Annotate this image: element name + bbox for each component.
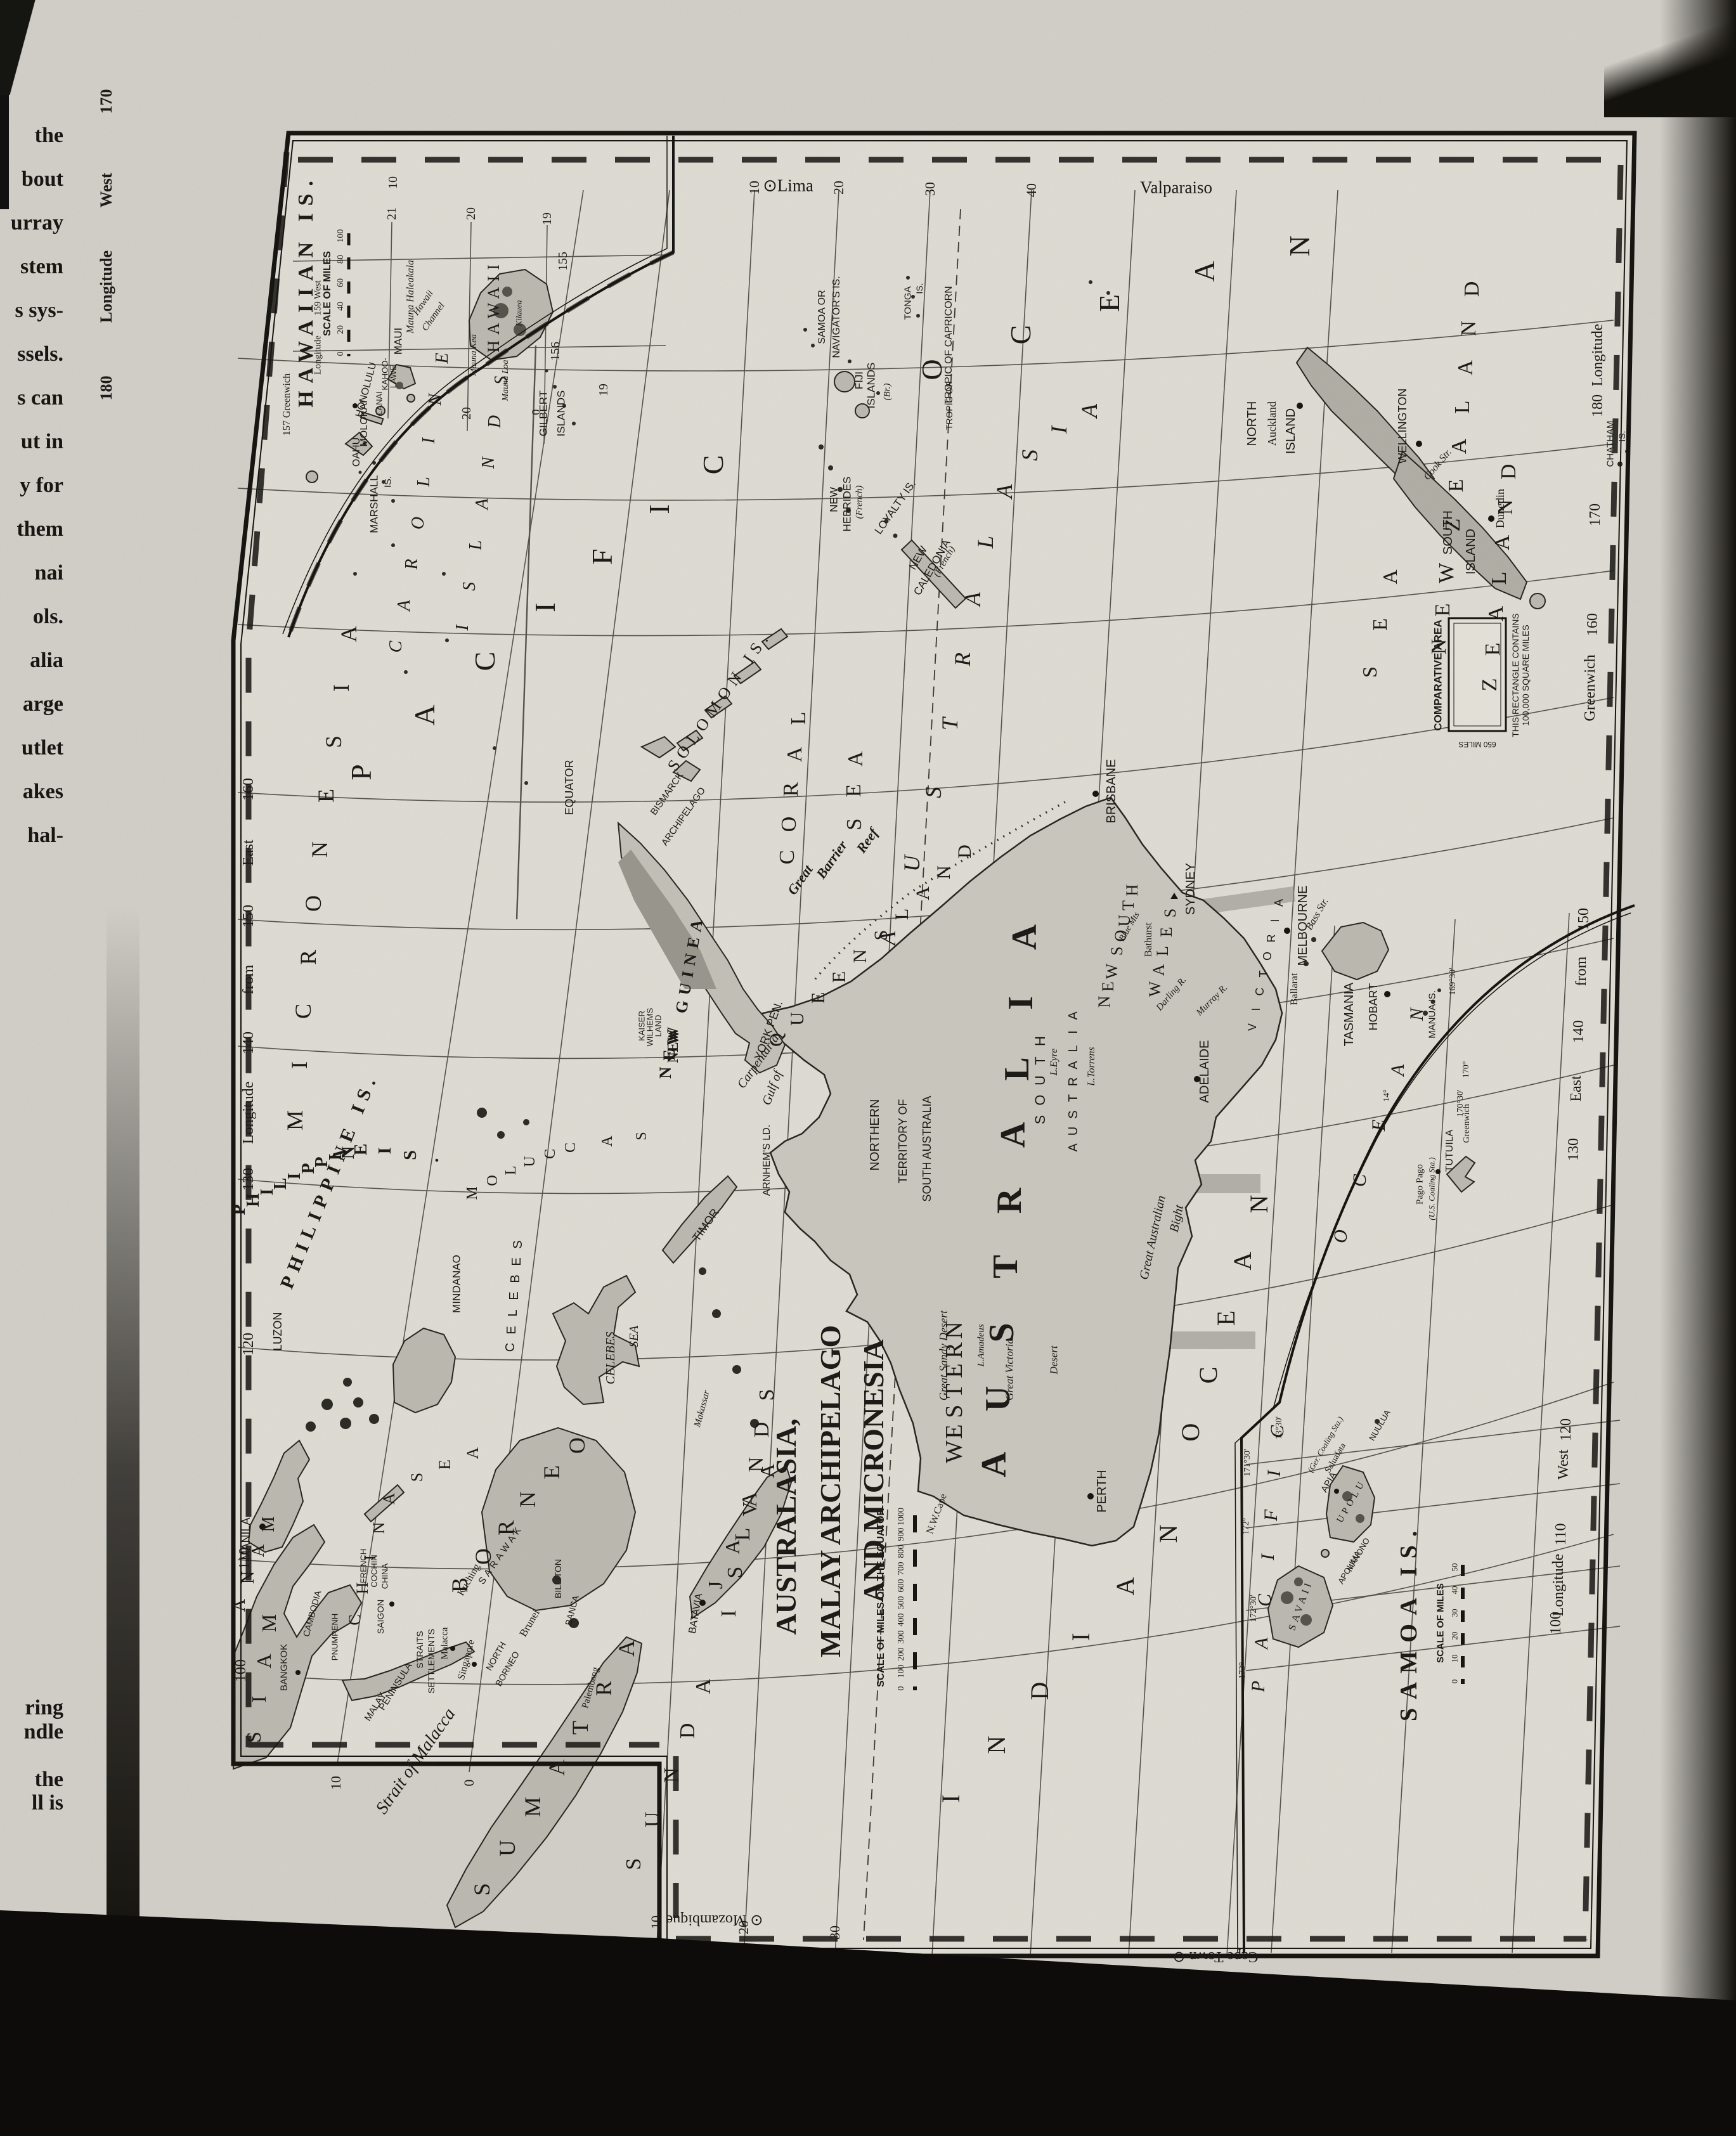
map-label-n: N	[657, 1067, 674, 1079]
map-label-mozambique: ⊙ Mozambique	[666, 1912, 763, 1927]
map-label-oahu: OAHU	[352, 437, 362, 467]
map-label-o: O	[779, 817, 800, 832]
map-label-northern: NORTHERN	[869, 1099, 881, 1171]
map-label-manua-is: MANUA IS.	[1428, 990, 1437, 1039]
map-label-br: (Br.)	[883, 383, 893, 400]
map-label-n: N	[1156, 1516, 1181, 1543]
map-label-100-000-square-miles: 100,000 SQUARE MILES	[1521, 625, 1530, 726]
map-label-o: O	[1262, 952, 1273, 961]
map-label-from: from	[241, 965, 256, 995]
map-label-l: L	[272, 1178, 290, 1190]
map-label-t: T	[1258, 971, 1269, 978]
map-label-a: A	[1389, 1065, 1408, 1076]
top-right-corner-blotch	[1604, 0, 1736, 117]
map-label-c: C	[1196, 1358, 1221, 1384]
map-label-longitude: Longitude	[1590, 324, 1605, 387]
map-label-o: O	[917, 349, 947, 380]
map-label-19: 19	[541, 212, 554, 225]
map-label-t: T	[988, 1255, 1023, 1278]
map-label-100: 100	[233, 1659, 249, 1682]
map-label-ballarat: Ballarat	[1290, 973, 1300, 1006]
map-label-n: N	[1428, 639, 1450, 655]
map-label-lawe: LAWE	[389, 365, 398, 388]
map-label-s: S	[512, 1240, 524, 1248]
map-label-t: T	[942, 1383, 966, 1398]
map-label-e: E	[510, 1257, 523, 1265]
map-label-i: I	[1003, 996, 1039, 1010]
map-label-m: M	[259, 1614, 279, 1632]
map-label-o: O	[1113, 930, 1129, 942]
map-label-m: M	[521, 1797, 544, 1817]
map-label-malacca: Malacca	[441, 1628, 450, 1660]
map-label-r: R	[403, 559, 421, 569]
map-label-e: E	[437, 1460, 453, 1470]
adjacent-page-fragment: the	[0, 124, 63, 148]
map-label-is: IS.	[384, 476, 393, 488]
map-label-e: E	[661, 1049, 678, 1060]
map-label-e: E	[314, 789, 337, 803]
map-label-n: N	[371, 1522, 387, 1534]
map-label-a: A	[722, 1539, 742, 1554]
adjacent-page-fragment: ring	[0, 1696, 63, 1720]
map-label-120: 120	[1558, 1418, 1574, 1441]
map-label-14: 14°	[1383, 1089, 1392, 1102]
map-label-s: S	[243, 1731, 264, 1743]
map-label-saigon: SAIGON	[376, 1600, 385, 1634]
map-label-scale-of-miles: SCALE OF MILES	[323, 251, 333, 336]
map-label-n: N	[851, 949, 870, 963]
map-label-0: 0	[337, 352, 346, 356]
map-label-0: 0	[1451, 1680, 1459, 1684]
map-label-pago-pago: Pago Pago	[1416, 1164, 1425, 1205]
map-label-10: 10	[748, 181, 761, 195]
map-label-bathurst: Bathurst	[1144, 922, 1154, 957]
map-label-1000: 1000	[897, 1508, 906, 1525]
map-label-longitude: Longitude	[241, 1082, 256, 1144]
map-label-s: S	[922, 787, 945, 798]
map-label-400: 400	[897, 1614, 906, 1627]
map-label-i: I	[454, 625, 472, 630]
map-label-l: L	[999, 1057, 1035, 1080]
map-label-a: A	[1230, 1243, 1255, 1271]
map-label-r: R	[992, 1188, 1027, 1214]
map-label-arnhem-s-ld: ARNHEM'S LD.	[762, 1125, 772, 1196]
map-label-comparative-area: COMPARATIVE AREA	[1433, 619, 1444, 730]
map-label-a: A	[1113, 1569, 1138, 1596]
map-label-0: 0	[462, 1780, 476, 1787]
adjacent-page-fragment: ll is	[0, 1791, 63, 1815]
map-label-h: H	[1033, 1036, 1047, 1046]
map-label-700: 700	[897, 1562, 906, 1576]
map-label-n: N	[1495, 500, 1517, 515]
adjacent-page-fragment: bout	[0, 167, 63, 191]
map-label-l: L	[503, 1166, 519, 1175]
map-label-l: L	[974, 536, 997, 548]
map-label-e: E	[942, 1363, 966, 1378]
map-label-scale-of-miles: SCALE OF MILES	[1436, 1583, 1446, 1663]
adjacent-page-fragment: them	[0, 517, 63, 541]
map-label-r: R	[1266, 935, 1277, 943]
map-label-south: SOUTH	[1442, 510, 1454, 555]
map-label-t: T	[569, 1721, 592, 1735]
map-label-z: Z	[1442, 519, 1464, 532]
map-label-i: I	[1067, 1030, 1080, 1034]
map-label-u: U	[900, 855, 923, 872]
map-label-i: I	[288, 1061, 311, 1069]
map-label-pnumpenh: PNUMPENH	[331, 1614, 339, 1660]
map-label-i: I	[249, 1696, 269, 1703]
map-label-e: E	[540, 1465, 563, 1479]
map-label-n: N	[1408, 1008, 1427, 1021]
map-label-10: 10	[1451, 1655, 1459, 1663]
map-label-f: F	[1262, 1510, 1281, 1521]
map-label-156: 156	[549, 342, 562, 361]
map-label-a: A	[337, 626, 360, 642]
map-label-d: D	[486, 415, 504, 428]
map-label-i: I	[377, 1148, 394, 1155]
map-label-200: 200	[897, 1648, 906, 1661]
map-label-173: 173°	[1238, 1662, 1247, 1680]
map-label-a: A	[1067, 1061, 1080, 1069]
map-label-a: A	[739, 1492, 761, 1508]
map-label-e: E	[353, 1144, 370, 1156]
map-label-s: S	[725, 1567, 746, 1579]
map-label-80: 80	[337, 255, 346, 264]
map-label-e: E	[1370, 618, 1390, 631]
map-label-a: A	[545, 1759, 568, 1776]
map-label-a: A	[465, 1447, 481, 1460]
map-label-french: FRENCH	[360, 1549, 368, 1583]
map-label-c: C	[1255, 1594, 1274, 1607]
map-label-l: L	[1489, 572, 1510, 585]
map-label-n: N	[516, 1491, 539, 1508]
map-label-150: 150	[1576, 908, 1591, 931]
map-label-a: A	[1380, 569, 1400, 584]
map-label-180: 180	[1590, 394, 1605, 417]
map-label-i: I	[1269, 919, 1281, 922]
map-label-900: 900	[897, 1528, 906, 1541]
adjacent-page-fragment: akes	[0, 780, 63, 804]
map-label-auckland: Auckland	[1266, 401, 1278, 446]
map-label-s: S	[984, 1323, 1020, 1342]
map-label-i: I	[1047, 426, 1070, 434]
map-label-i: I	[938, 1785, 964, 1803]
map-label-a: A	[1252, 1638, 1271, 1649]
map-label-l: L	[1067, 1045, 1080, 1052]
map-label-e: E	[942, 1424, 966, 1439]
map-label-e: E	[1370, 1120, 1389, 1131]
map-label-chatham: CHATHAM	[1606, 420, 1616, 467]
map-label-i: I	[1265, 1470, 1284, 1477]
map-label-c: C	[777, 850, 798, 865]
map-label-c: C	[470, 642, 500, 671]
map-label-m: M	[283, 1110, 306, 1130]
map-label-malay-archipelago: MALAY ARCHIPELAGO	[816, 1325, 845, 1657]
map-label-wellington: WELLINGTON	[1397, 389, 1408, 464]
map-label-o: O	[302, 895, 325, 912]
map-label-hebrides: HEBRIDES	[842, 477, 853, 532]
map-label-l: L	[507, 1309, 519, 1316]
map-label-a: A	[1190, 250, 1219, 282]
map-label-300: 300	[897, 1631, 906, 1644]
map-label-hawaii: HAWAII	[486, 259, 502, 353]
map-label-billiton: BILLITON	[554, 1559, 562, 1598]
map-label-o: O	[472, 1548, 495, 1565]
map-label-t: T	[938, 718, 961, 730]
map-label-d: D	[1027, 1673, 1053, 1700]
map-label-s: S	[409, 1473, 425, 1482]
map-label-hawaiian-is: HAWAIIAN IS.	[295, 173, 317, 408]
map-label-s: S	[1018, 450, 1041, 461]
map-label-s: S	[1067, 1110, 1080, 1118]
map-label-a: A	[784, 747, 806, 763]
map-label-a: A	[381, 1493, 398, 1505]
map-label-157-greenwich: 157 Greenwich	[282, 373, 292, 436]
map-label-e: E	[508, 1291, 521, 1300]
map-label-20: 20	[832, 181, 846, 195]
map-label-is: IS.	[915, 283, 924, 294]
map-label-n: N	[746, 1457, 767, 1473]
map-label-s: S	[634, 1132, 649, 1140]
map-label-settlements: SETTLEMENTS	[427, 1629, 436, 1693]
map-label-20: 20	[460, 407, 473, 420]
map-label-n: N	[240, 1571, 257, 1584]
map-label-a: A	[1067, 1143, 1080, 1151]
map-label-q: Q	[767, 1033, 786, 1047]
map-label-a: A	[995, 1122, 1031, 1148]
map-label-110: 110	[1553, 1523, 1569, 1545]
map-label-u: U	[980, 1386, 1016, 1411]
map-label-100: 100	[1548, 1612, 1564, 1634]
map-label-h: H	[1124, 884, 1141, 896]
map-label-a: A	[693, 1679, 715, 1695]
map-label-tasmania: TASMANIA	[1343, 983, 1356, 1047]
adjacent-page-fragment: ols.	[0, 605, 63, 629]
map-label-r: R	[592, 1681, 615, 1696]
map-label-r: R	[951, 652, 974, 666]
map-label-l-eyre: L.Eyre	[1049, 1049, 1059, 1076]
scanned-book-page: 170WestLongitude180157 Greenwich159 West…	[0, 0, 1736, 2136]
map-label-luzon: LUZON	[272, 1312, 283, 1350]
map-label-o: O	[1033, 1094, 1047, 1105]
map-label-u: U	[522, 1156, 538, 1167]
map-label-o: O	[566, 1437, 588, 1454]
map-label-e: E	[1214, 1302, 1239, 1326]
gutter-shadow	[107, 907, 139, 1934]
map-label-n: N	[308, 841, 331, 858]
map-label-bangkok: BANGKOK	[280, 1644, 289, 1691]
map-label-u: U	[1033, 1075, 1047, 1085]
map-label-i: I	[645, 494, 674, 514]
map-label-sydney: SYDNEY	[1184, 863, 1197, 915]
map-label-l: L	[732, 1528, 754, 1541]
map-label-100: 100	[337, 230, 346, 243]
map-label-w: W	[942, 1440, 966, 1463]
map-label-10: 10	[329, 1776, 343, 1790]
map-label-t: T	[1120, 900, 1137, 910]
map-label-i: I	[1259, 1554, 1278, 1560]
map-label-c: C	[347, 1614, 363, 1625]
map-label-150: 150	[241, 905, 256, 928]
map-label-20: 20	[1451, 1632, 1459, 1640]
map-label-i: I	[362, 1555, 379, 1561]
map-label-cape-town: Cape Town ⊙	[1172, 1949, 1258, 1964]
map-label-40: 40	[337, 302, 346, 311]
adjacent-page-fragment: ndle	[0, 1720, 63, 1744]
map-label-r: R	[1067, 1077, 1080, 1086]
map-label-s: S	[1162, 909, 1179, 917]
adjacent-page-fragment: ut in	[0, 430, 63, 454]
map-label-i: I	[420, 437, 438, 443]
map-label-170: 170	[98, 89, 115, 114]
map-label-650-miles: 650 MILES	[1458, 741, 1496, 748]
map-label-140: 140	[241, 1032, 256, 1054]
map-label-c: C	[1254, 988, 1266, 996]
map-label-w: W	[1147, 981, 1163, 997]
map-label-c: C	[543, 1149, 558, 1159]
map-label-l: L	[1155, 946, 1171, 956]
map-label-r: R	[495, 1520, 517, 1536]
map-label-o: O	[1178, 1414, 1203, 1442]
map-label-20: 20	[337, 325, 346, 334]
map-label-south-australia: SOUTH AUSTRALIA	[921, 1096, 933, 1201]
map-label-t: T	[1033, 1056, 1047, 1065]
map-label-21: 21	[385, 207, 398, 220]
map-label-a: A	[1486, 606, 1507, 622]
map-label-u: U	[788, 1012, 807, 1026]
map-label-170: 170°	[1462, 1061, 1471, 1078]
map-label-marshall: MARSHALL	[369, 475, 380, 533]
map-label-d: D	[1498, 464, 1520, 480]
map-label-lima: ⊙Lima	[763, 178, 813, 195]
map-label-l: L	[415, 477, 433, 487]
map-label-u: U	[496, 1840, 519, 1856]
map-label-new: NEW	[829, 487, 839, 512]
map-label-longitude: Longitude	[98, 250, 115, 323]
map-label-samoa-is: SAMOA IS.	[1397, 1522, 1421, 1721]
map-label-land: LAND	[654, 1015, 663, 1037]
map-label-n: N	[1285, 225, 1314, 256]
map-label-s: S	[844, 819, 865, 831]
map-label-u: U	[642, 1812, 664, 1828]
map-label-l: L	[893, 909, 912, 920]
map-label-e: E	[1100, 981, 1117, 992]
adjacent-page-fragment: urray	[0, 211, 63, 235]
map-label-e: E	[1482, 643, 1504, 656]
map-label-and-micronesia: AND MICRONESIA	[859, 1339, 888, 1602]
map-label-u: U	[1067, 1127, 1080, 1136]
map-label-n: N	[661, 1768, 683, 1783]
map-label-e: E	[843, 784, 865, 798]
map-label-160: 160	[241, 778, 256, 801]
map-label-o: O	[410, 517, 427, 529]
map-label-40: 40	[1025, 183, 1039, 197]
map-label-a: A	[845, 751, 867, 767]
map-label-valparaiso: Valparaiso	[1140, 179, 1212, 197]
map-label-d: D	[955, 845, 975, 858]
map-label-100: 100	[897, 1665, 906, 1678]
adjacent-page-fragment: s sys-	[0, 299, 63, 323]
map-label-u-s-coaling-sta: (U.S. Coaling Sta.)	[1428, 1157, 1436, 1220]
map-label-800: 800	[897, 1545, 906, 1558]
map-label-l: L	[1452, 401, 1474, 414]
map-label-d: D	[1461, 282, 1483, 297]
map-label-20: 20	[465, 207, 477, 220]
map-label-160: 160	[1585, 613, 1600, 636]
map-label-i: I	[718, 1610, 740, 1617]
map-label-n: N	[1247, 1186, 1272, 1214]
map-label-island: ISLAND	[1285, 408, 1297, 454]
map-label-w: W	[1436, 563, 1458, 583]
map-label-180: 180	[98, 376, 115, 401]
map-label-a: A	[1492, 535, 1513, 551]
map-label-40: 40	[1451, 1586, 1459, 1595]
map-label-this-rectangle-contains: THIS RECTANGLE CONTAINS	[1511, 613, 1520, 737]
map-label-120: 120	[241, 1333, 256, 1356]
map-label-celebes: CELEBES	[604, 1331, 617, 1384]
map-label-a: A	[914, 886, 933, 900]
map-label-a: A	[396, 600, 413, 611]
map-label-s: S	[1033, 1115, 1047, 1125]
adjacent-page-fragment: hal-	[0, 824, 63, 848]
right-page-edge-shadow	[1660, 0, 1736, 2136]
map-label-l: L	[467, 540, 485, 550]
map-label-60: 60	[337, 278, 346, 287]
map-label-brisbane: BRISBANE	[1105, 759, 1118, 823]
map-label-a: A	[1449, 439, 1470, 455]
map-label-i: I	[330, 684, 353, 692]
map-label-50: 50	[1451, 1563, 1459, 1572]
map-label-kilauea: Kilauea	[515, 300, 523, 326]
map-label-l: L	[788, 712, 810, 725]
map-label-n: N	[935, 865, 954, 879]
map-label-c: C	[504, 1343, 517, 1352]
map-label-s: S	[493, 376, 510, 385]
map-label-greenwich: Greenwich	[1463, 1104, 1472, 1142]
adjacent-page-fragment: y for	[0, 474, 63, 498]
map-label-e: E	[505, 1326, 518, 1334]
map-label-s: S	[1359, 666, 1380, 678]
map-label-gilbert: GILBERT	[538, 391, 549, 436]
map-label-a: A	[250, 1544, 268, 1557]
map-label-a: A	[600, 1136, 615, 1146]
adjacent-page-fragment: arge	[0, 692, 63, 716]
map-label-t: T	[1067, 1094, 1080, 1102]
map-label-d: D	[677, 1723, 699, 1739]
map-label-u: U	[1117, 915, 1133, 927]
map-label-h: H	[354, 1583, 371, 1595]
map-label-600: 600	[897, 1579, 906, 1593]
map-label-155: 155	[557, 252, 569, 271]
map-label-s: S	[756, 1389, 778, 1401]
map-label-islands: ISLANDS	[866, 363, 877, 409]
map-label-a: A	[410, 694, 439, 725]
adjacent-page-fragment: stem	[0, 255, 63, 279]
map-label-is: IS.	[1617, 430, 1626, 441]
map-label-r: R	[297, 950, 320, 965]
map-label-30: 30	[923, 182, 937, 196]
map-label-b: B	[448, 1577, 471, 1593]
map-label-e: E	[1432, 604, 1454, 617]
map-label-perth: PERTH	[1096, 1470, 1108, 1512]
map-label-tropic-of: TROPIC OF	[945, 382, 954, 430]
map-label-e: E	[809, 992, 828, 1004]
map-label-longitude: Longitude	[1551, 1554, 1566, 1617]
map-label-r: R	[781, 782, 802, 797]
map-label-samoa-or: SAMOA OR	[817, 290, 827, 344]
map-label-a: A	[993, 484, 1016, 498]
map-label-p: P	[1249, 1681, 1268, 1692]
